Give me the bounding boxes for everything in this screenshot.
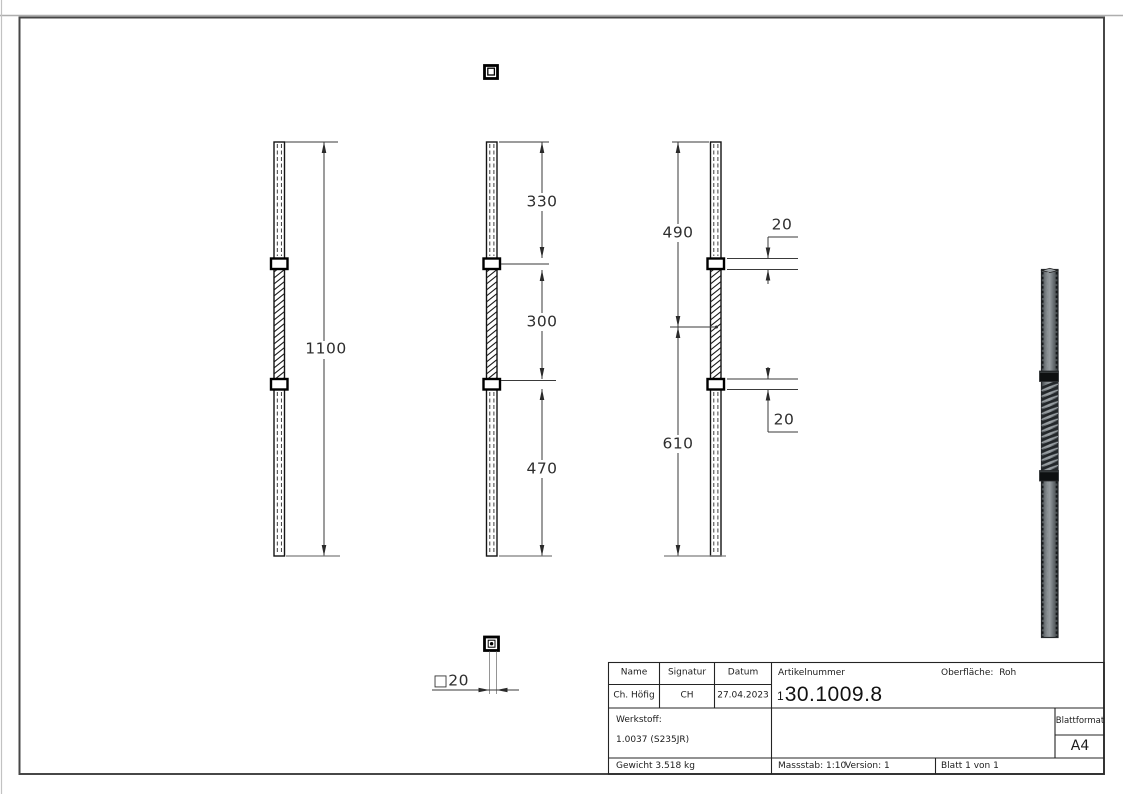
dim-label-segment-top: 330 — [523, 194, 560, 210]
dim-label-collar-upper: 20 — [769, 217, 796, 233]
titleblock-blattformat-label: Blattformat — [1056, 717, 1104, 726]
titleblock-blattformat-value: A4 — [1071, 739, 1089, 753]
oberflaeche-label: Oberfläche: — [941, 668, 993, 678]
titleblock-signatur-value: CH — [680, 692, 693, 701]
titleblock-blatt: Blatt 1 von 1 — [941, 762, 999, 771]
dim-label-profile: □20 — [430, 673, 472, 689]
dim-label-segment-bottom: 470 — [523, 461, 560, 477]
front-view-rod-halves — [708, 142, 725, 556]
collar-lower — [271, 379, 288, 390]
collar-upper — [271, 259, 288, 270]
front-view-rod-total — [271, 142, 288, 556]
drawing-sheet: 1100 330 300 470 490 610 20 20 □20 Name … — [0, 0, 1123, 794]
titleblock-oberflaeche: Oberfläche: Roh — [941, 669, 1016, 678]
titleblock-werkstoff-value: 1.0037 (S235JR) — [616, 736, 689, 745]
dim-label-lower-half: 610 — [659, 436, 696, 452]
titleblock-massstab: Massstab: 1:10 — [778, 762, 846, 771]
titleblock-signatur-label: Signatur — [668, 669, 706, 678]
oberflaeche-value: Roh — [999, 668, 1016, 678]
titleblock-version: Version: 1 — [845, 762, 890, 771]
dim-label-upper-half: 490 — [659, 225, 696, 241]
collar-upper — [708, 259, 725, 270]
collar-lower — [484, 379, 501, 390]
titleblock-artikelnummer-label: Artikelnummer — [778, 669, 845, 678]
titleblock-datum-label: Datum — [728, 669, 758, 678]
titleblock-datum-value: 27.04.2023 — [717, 692, 769, 701]
collar-upper — [484, 259, 501, 270]
dim-label-collar-lower: 20 — [771, 412, 798, 428]
artikelnummer-prefix: 1 — [777, 690, 784, 702]
titleblock-artikelnummer-value: 130.1009.8 — [777, 684, 883, 703]
top-view-square — [485, 66, 498, 79]
titleblock-werkstoff-label: Werkstoff: — [616, 716, 662, 725]
titleblock-name-label: Name — [621, 669, 648, 678]
titleblock-name-value: Ch. Höfig — [613, 692, 654, 701]
collar-lower — [708, 379, 725, 390]
title-block-grid — [609, 663, 1105, 775]
front-view-rod-segments — [484, 142, 501, 556]
dim-label-segment-middle: 300 — [523, 314, 560, 330]
artikelnummer-main: 30.1009.8 — [785, 684, 883, 705]
rendered-3d-rod — [1040, 268, 1059, 637]
dim-label-total-length: 1100 — [302, 341, 349, 357]
titleblock-gewicht: Gewicht 3.518 kg — [616, 762, 695, 771]
